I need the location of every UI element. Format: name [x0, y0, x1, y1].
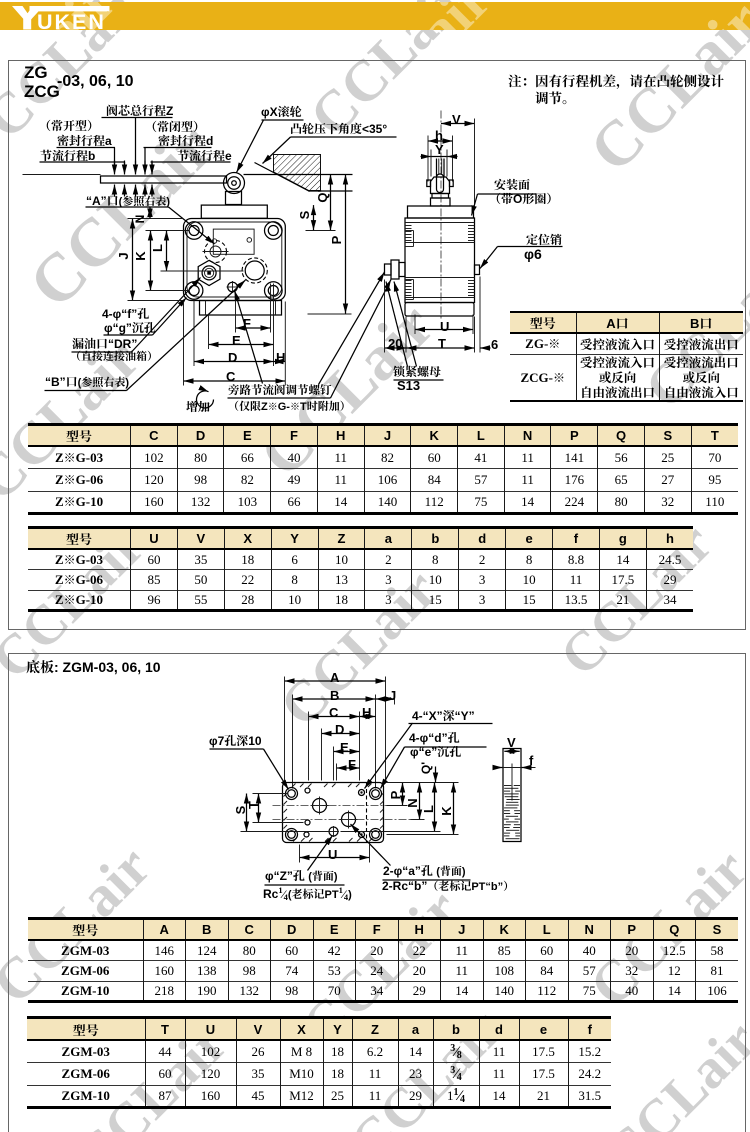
svg-text:UKEN: UKEN: [37, 10, 106, 30]
